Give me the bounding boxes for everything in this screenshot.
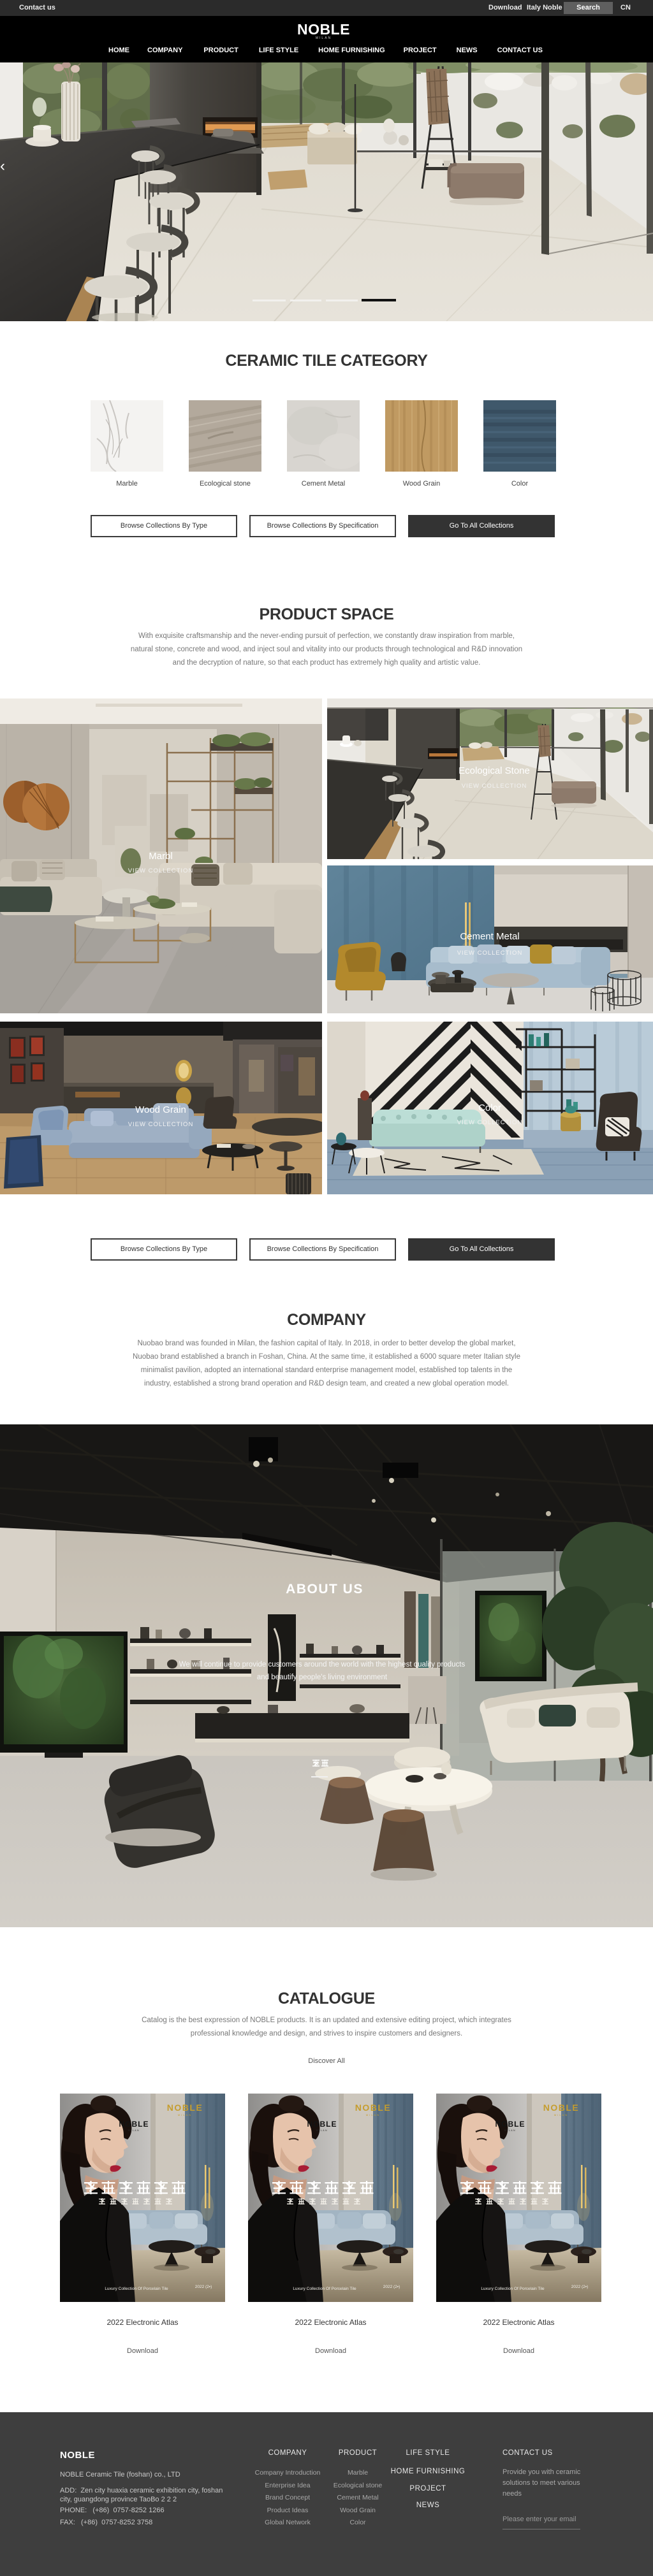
svg-text:2022 (2▪): 2022 (2▪) xyxy=(195,2285,212,2289)
svg-text:MILAN: MILAN xyxy=(178,2113,192,2117)
svg-text:MILAN: MILAN xyxy=(504,2129,516,2132)
svg-text:and beautify people's living e: and beautify people's living environment xyxy=(257,1674,388,1681)
svg-text:NOBLE: NOBLE xyxy=(495,2120,525,2129)
svg-text:VIEW COLLECTION: VIEW COLLECTION xyxy=(462,783,527,790)
svg-text:2022 (2▪): 2022 (2▪) xyxy=(571,2285,589,2289)
svg-text:2022 (2▪): 2022 (2▪) xyxy=(383,2285,400,2289)
svg-text:Luxury Collection Of Porcelain: Luxury Collection Of Porcelain Tile xyxy=(105,2287,168,2291)
svg-text:Ecological Stone: Ecological Stone xyxy=(459,765,530,776)
svg-text:Color: Color xyxy=(478,1103,501,1113)
svg-text:MILAN: MILAN xyxy=(554,2113,568,2117)
svg-text:Marbl: Marbl xyxy=(149,851,173,862)
svg-text:VIEW COLLECTION: VIEW COLLECTION xyxy=(128,1121,194,1128)
svg-text:Luxury Collection Of Porcelain: Luxury Collection Of Porcelain Tile xyxy=(481,2287,545,2291)
svg-text:VIEW COLLECTION: VIEW COLLECTION xyxy=(457,1119,523,1126)
svg-text:NOBLE: NOBLE xyxy=(167,2102,203,2113)
svg-text:ABOUT US: ABOUT US xyxy=(286,1582,363,1596)
svg-text:‹: ‹ xyxy=(0,157,5,175)
svg-text:Cement Metal: Cement Metal xyxy=(460,931,519,942)
svg-text:VIEW COLLECTION: VIEW COLLECTION xyxy=(457,950,523,957)
svg-text:NOBLE: NOBLE xyxy=(543,2102,580,2113)
svg-text:VIEW COLLECTION: VIEW COLLECTION xyxy=(128,867,194,874)
svg-text:MILAN: MILAN xyxy=(316,2129,328,2132)
svg-text:NOBLE: NOBLE xyxy=(119,2120,149,2129)
svg-text:NOBLE: NOBLE xyxy=(355,2102,392,2113)
svg-text:MILAN: MILAN xyxy=(366,2113,380,2117)
svg-text:We will continue to provide cu: We will continue to provide customers ar… xyxy=(179,1661,466,1668)
svg-text:NOBLE: NOBLE xyxy=(307,2120,337,2129)
svg-text:Wood Grain: Wood Grain xyxy=(135,1104,186,1115)
svg-text:Luxury Collection Of Porcelain: Luxury Collection Of Porcelain Tile xyxy=(293,2287,356,2291)
svg-text:MILAN: MILAN xyxy=(128,2129,140,2132)
